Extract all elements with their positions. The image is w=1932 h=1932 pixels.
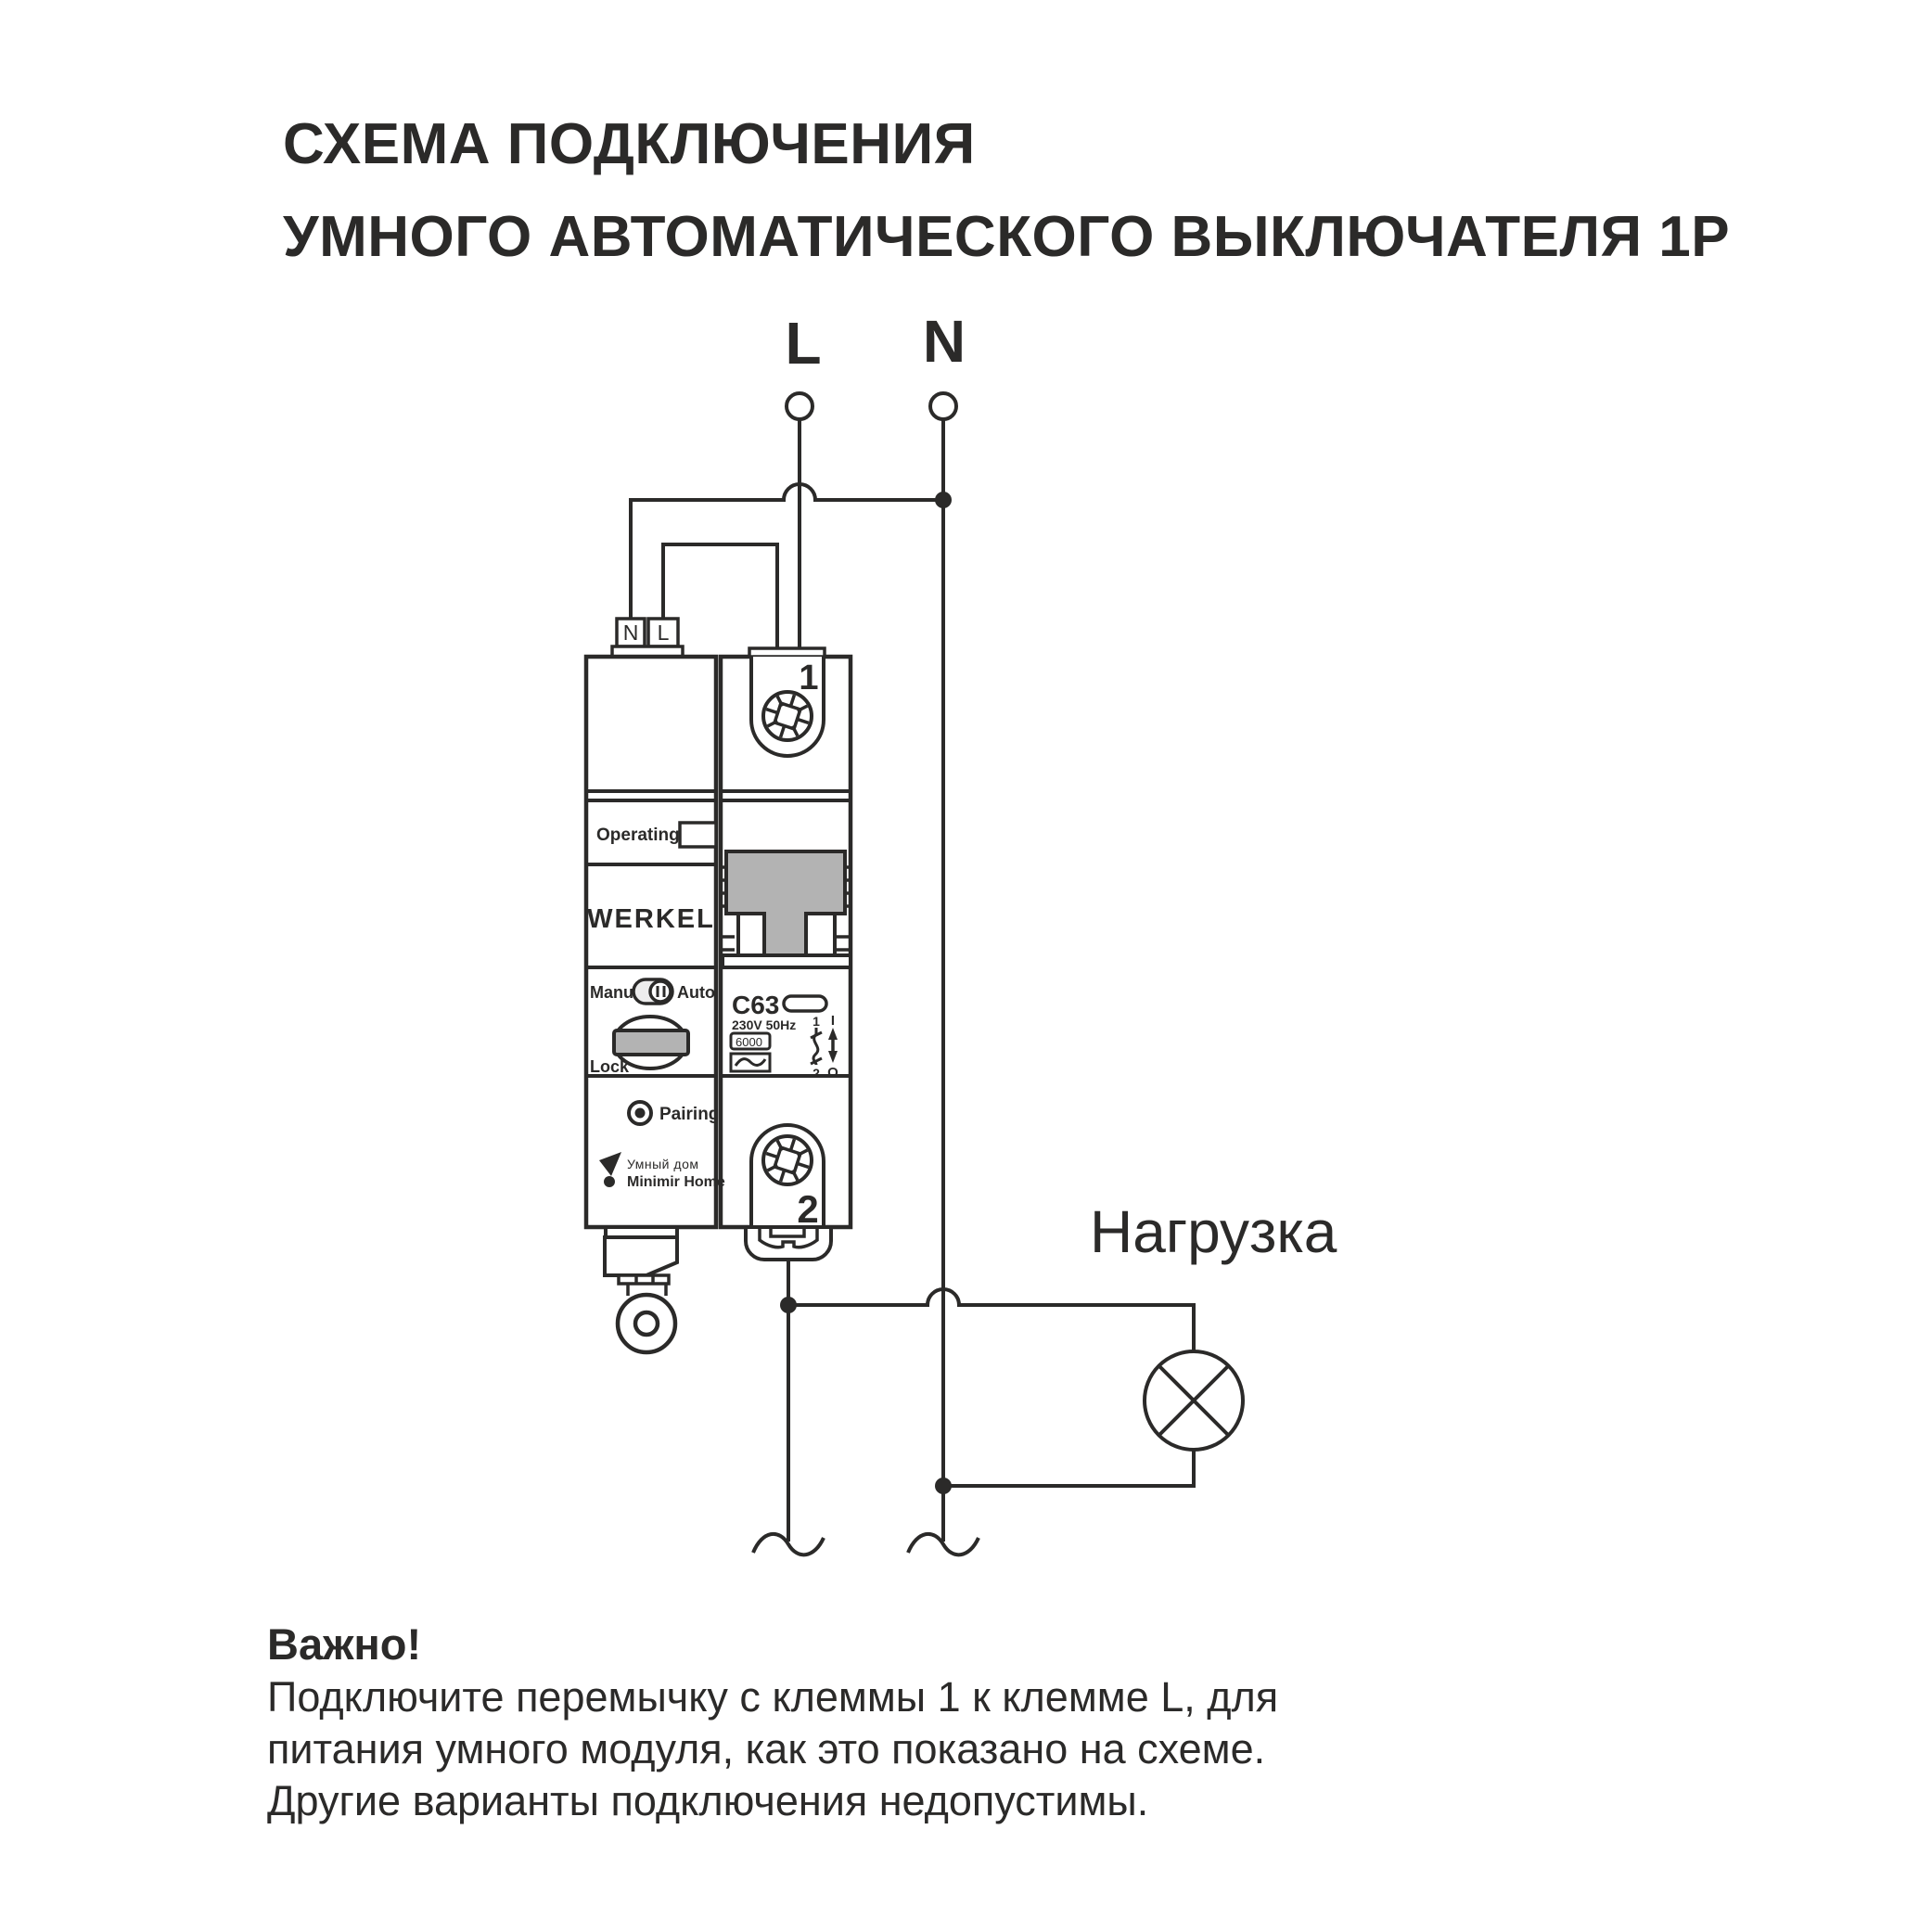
operating-label: Operating — [596, 825, 680, 845]
wire-jumper — [663, 544, 777, 648]
contact-top-label: 1 — [812, 1014, 820, 1029]
handle-side-box-right — [806, 914, 835, 955]
important-note: Важно! Подключите перемычку с клеммы 1 к… — [267, 1618, 1278, 1827]
terminal2-label: 2 — [797, 1187, 818, 1231]
load-label: Нагрузка — [1090, 1198, 1337, 1265]
terminal1-plate — [749, 648, 825, 657]
handle-base-plate — [723, 955, 851, 967]
voltage-label: 230V 50Hz — [732, 1017, 796, 1032]
pairing-icon — [629, 1102, 651, 1124]
auto-label: Auto — [677, 983, 715, 1002]
handle-side-box-left — [738, 914, 764, 955]
diagram-canvas: СХЕМА ПОДКЛЮЧЕНИЯ УМНОГО АВТОМАТИЧЕСКОГО… — [0, 0, 1932, 1932]
connector-ring-inner — [635, 1312, 658, 1335]
wire-load-branch — [788, 1289, 1194, 1351]
logo-bottom-label: Minimir Home — [627, 1174, 725, 1190]
contact-bottom-label: 2 — [812, 1066, 820, 1081]
junction-dot — [935, 1478, 952, 1494]
wire-n-feed — [631, 484, 940, 619]
off-label: O — [827, 1065, 838, 1081]
n-supply-terminal — [930, 393, 956, 419]
wire-lamp-return — [948, 1450, 1194, 1486]
toggle-knob — [650, 981, 671, 1002]
lamp-icon — [1145, 1351, 1243, 1450]
sine-symbol-icon — [731, 1054, 770, 1071]
logo-top-label: Умный дом — [627, 1157, 698, 1171]
module-terminal-n-label: N — [623, 621, 639, 645]
rating-label: C63 — [732, 991, 779, 1019]
junction-dot — [780, 1297, 797, 1313]
pairing-label: Pairing — [659, 1105, 719, 1124]
note-line: Подключите перемычку с клеммы 1 к клемме… — [267, 1671, 1278, 1723]
lock-knob-bar — [614, 1030, 688, 1055]
note-heading: Важно! — [267, 1618, 1278, 1671]
module-bottom-connector — [605, 1227, 677, 1352]
connector-block — [605, 1237, 677, 1275]
l-supply-label: L — [785, 310, 821, 377]
rating-pill — [784, 996, 826, 1011]
lock-label: Lock — [590, 1057, 630, 1076]
capacity-label: 6000 — [736, 1035, 762, 1049]
junction-dot — [935, 492, 952, 508]
n-supply-label: N — [923, 308, 966, 375]
manu-label: Manu — [590, 983, 633, 1002]
connector-teeth — [619, 1275, 669, 1284]
note-line: питания умного модуля, как это показано … — [267, 1723, 1278, 1775]
note-line: Другие варианты подключения недопустимы. — [267, 1775, 1278, 1827]
operating-led — [680, 823, 716, 847]
l-supply-terminal — [787, 393, 812, 419]
terminal1-label: 1 — [799, 659, 818, 697]
brand-label: WERKEL — [587, 904, 715, 934]
module-terminal-l-label: L — [658, 621, 670, 645]
smart-module-body — [586, 657, 716, 1227]
on-label: I — [831, 1013, 835, 1029]
manu-auto-toggle — [633, 979, 672, 1004]
